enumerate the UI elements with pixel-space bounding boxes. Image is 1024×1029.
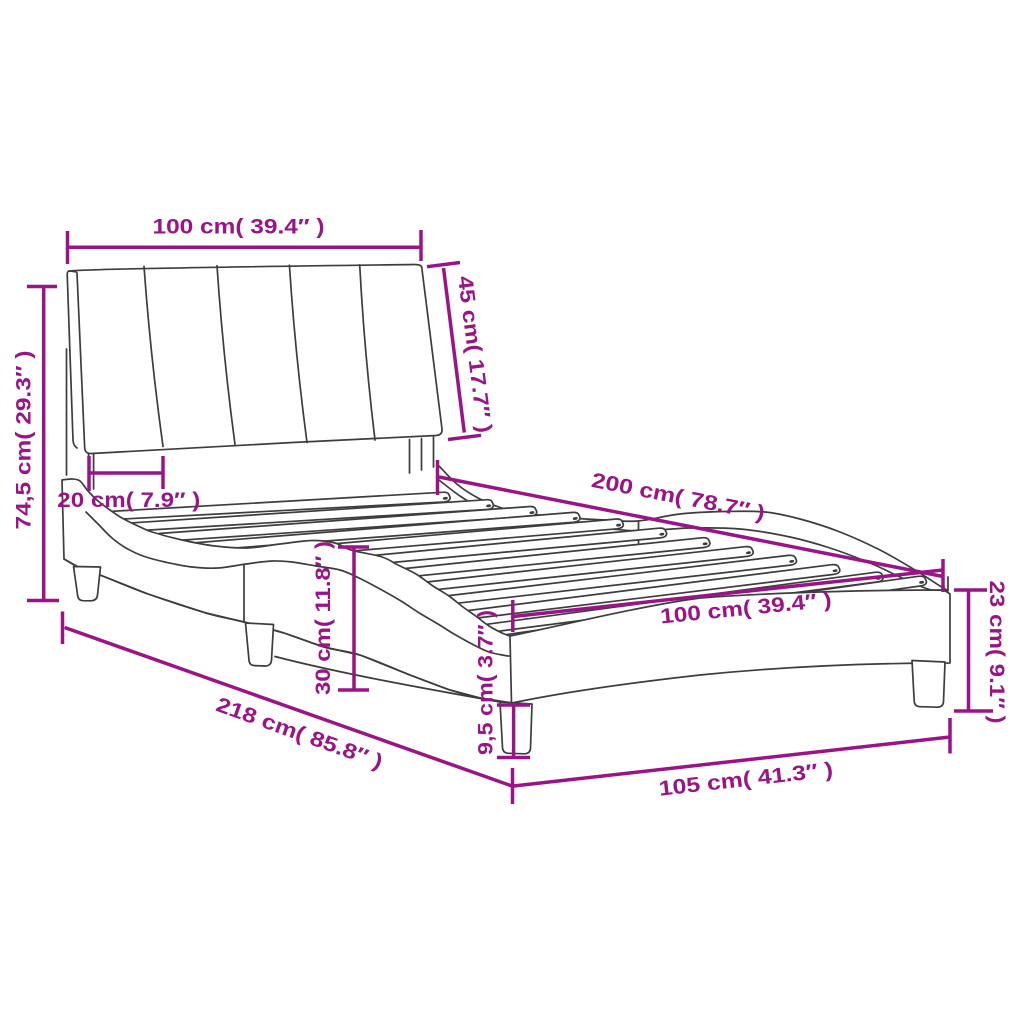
svg-text:9,5 cm( 3.7″ ): 9,5 cm( 3.7″ ) <box>475 610 498 755</box>
svg-text:30 cm( 11.8″ ): 30 cm( 11.8″ ) <box>312 541 335 695</box>
svg-text:100 cm( 39.4″ ): 100 cm( 39.4″ ) <box>153 216 325 239</box>
svg-text:20 cm( 7.9″ ): 20 cm( 7.9″ ) <box>57 489 200 512</box>
svg-text:74,5 cm( 29.3″ ): 74,5 cm( 29.3″ ) <box>13 351 36 530</box>
svg-text:23 cm( 9.1″ ): 23 cm( 9.1″ ) <box>985 581 1008 724</box>
